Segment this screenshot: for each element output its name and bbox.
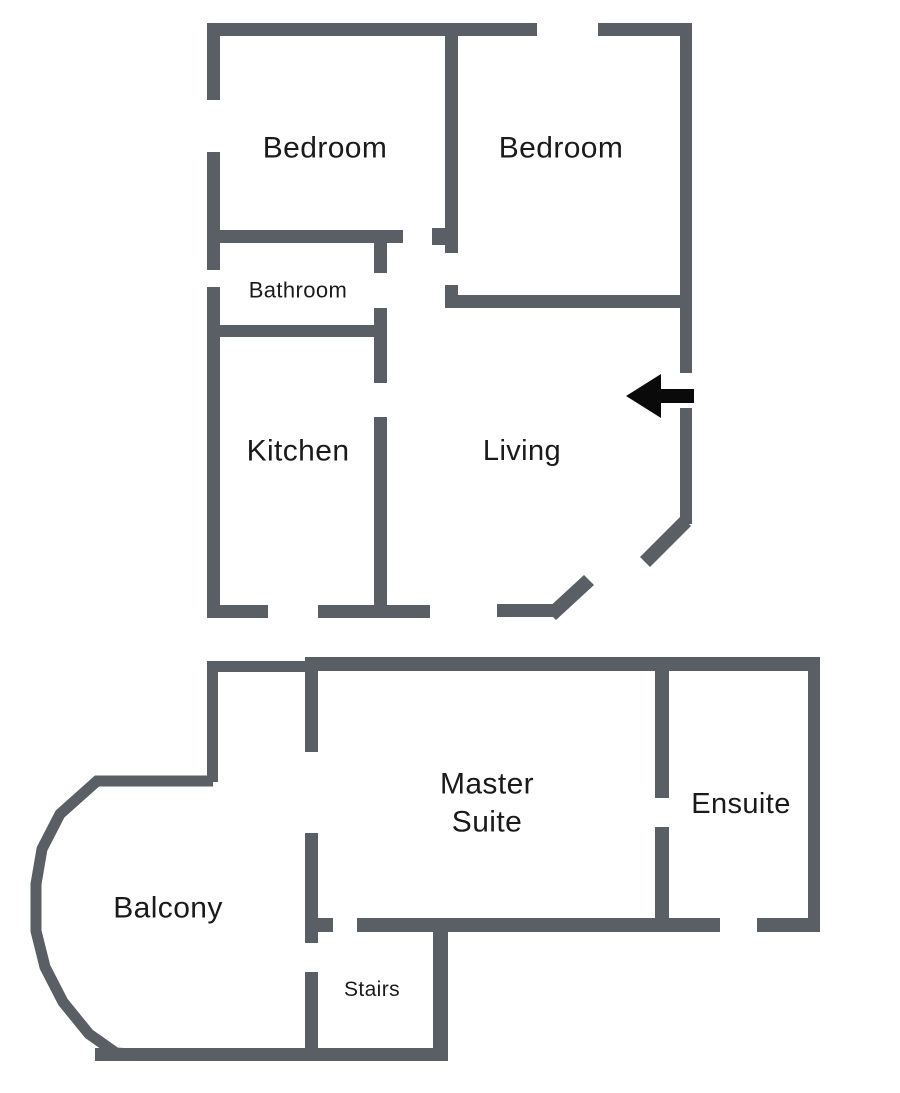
wall-bathroom-bottom [207, 325, 380, 337]
wall-lower-left [207, 661, 218, 782]
entrance-arrow-tail [659, 389, 694, 403]
wall-bathroom-right-a [374, 243, 387, 273]
wall-master-divider-a [305, 657, 318, 752]
wall-upper-left-b [207, 152, 220, 270]
wall-upper-left-a [207, 23, 220, 100]
wall-upper-top-left [207, 23, 537, 36]
wall-upper-right-a [680, 23, 692, 373]
wall-bedroom-right-bottom [445, 295, 692, 308]
wall-bathroom-right-b [374, 308, 387, 383]
entrance-arrow-head [626, 374, 661, 418]
wall-lower-top-left [207, 661, 318, 672]
wall-lower-top-main [305, 657, 820, 671]
room-label-kitchen: Kitchen [247, 432, 350, 470]
wall-ensuite-divider-b [655, 827, 669, 932]
wall-upper-top-right [598, 23, 692, 36]
room-label-living: Living [483, 433, 561, 469]
wall-stairs-top-stub [305, 918, 333, 932]
wall-lower-bottom [95, 1048, 448, 1061]
room-label-bathroom: Bathroom [249, 276, 348, 304]
wall-bathroom-top [207, 230, 403, 243]
wall-bedroom-divider [445, 23, 458, 253]
wall-bedroom-divider-foot [432, 228, 445, 245]
wall-ensuite-divider-a [655, 657, 669, 798]
room-label-balcony: Balcony [113, 889, 223, 927]
wall-living-diagonal-upper [640, 516, 691, 567]
wall-upper-bottom-c [497, 604, 553, 617]
wall-kitchen-right [374, 417, 387, 618]
room-label-bedroom-right: Bedroom [499, 129, 624, 167]
room-label-bedroom-left: Bedroom [263, 129, 388, 167]
floor-plan-canvas [0, 0, 900, 1093]
wall-stairs-right [433, 922, 448, 1061]
room-label-stairs: Stairs [344, 977, 400, 1003]
room-label-master-suite: Master Suite [421, 766, 553, 841]
wall-living-diagonal-lower [546, 575, 594, 620]
room-label-ensuite: Ensuite [691, 786, 791, 822]
wall-upper-bottom-b [318, 605, 430, 618]
wall-upper-right-b [680, 408, 692, 524]
wall-upper-bottom-a [207, 605, 268, 618]
wall-stairs-left [305, 972, 318, 1055]
wall-lower-right [808, 657, 820, 932]
floor-plan: Bedroom Bedroom Bathroom Kitchen Living … [0, 0, 900, 1093]
